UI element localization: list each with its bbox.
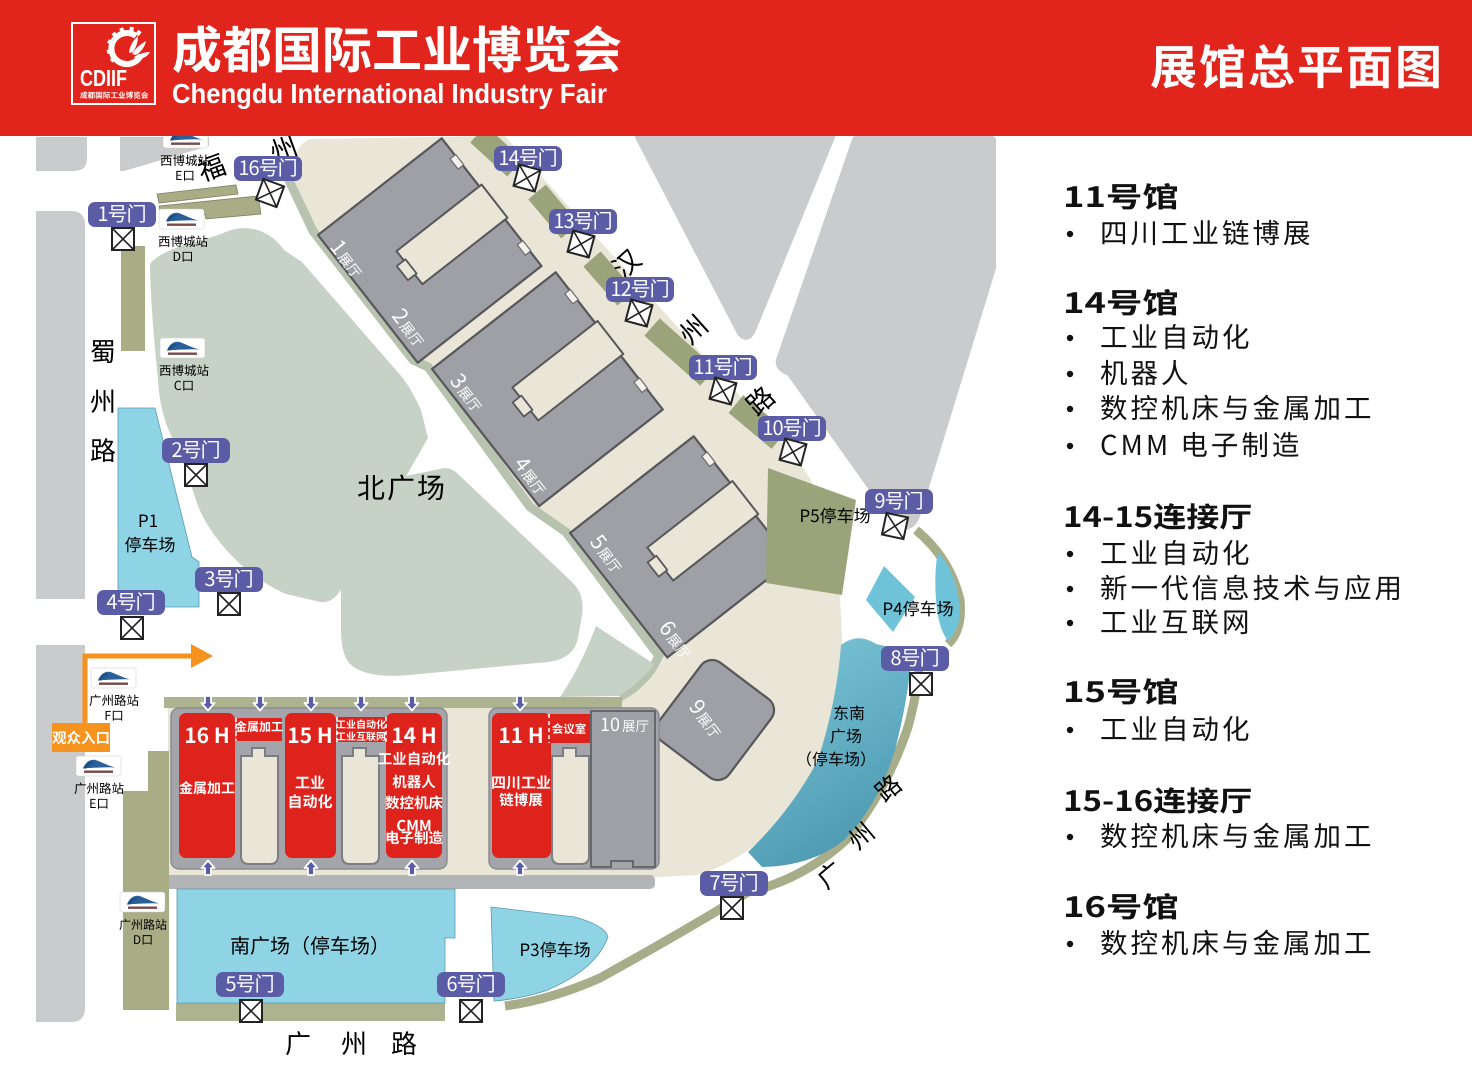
svg-text:CDIIF: CDIIF — [80, 65, 127, 91]
svg-text:Chengdu International Industry: Chengdu International Industry Fair — [172, 78, 607, 109]
